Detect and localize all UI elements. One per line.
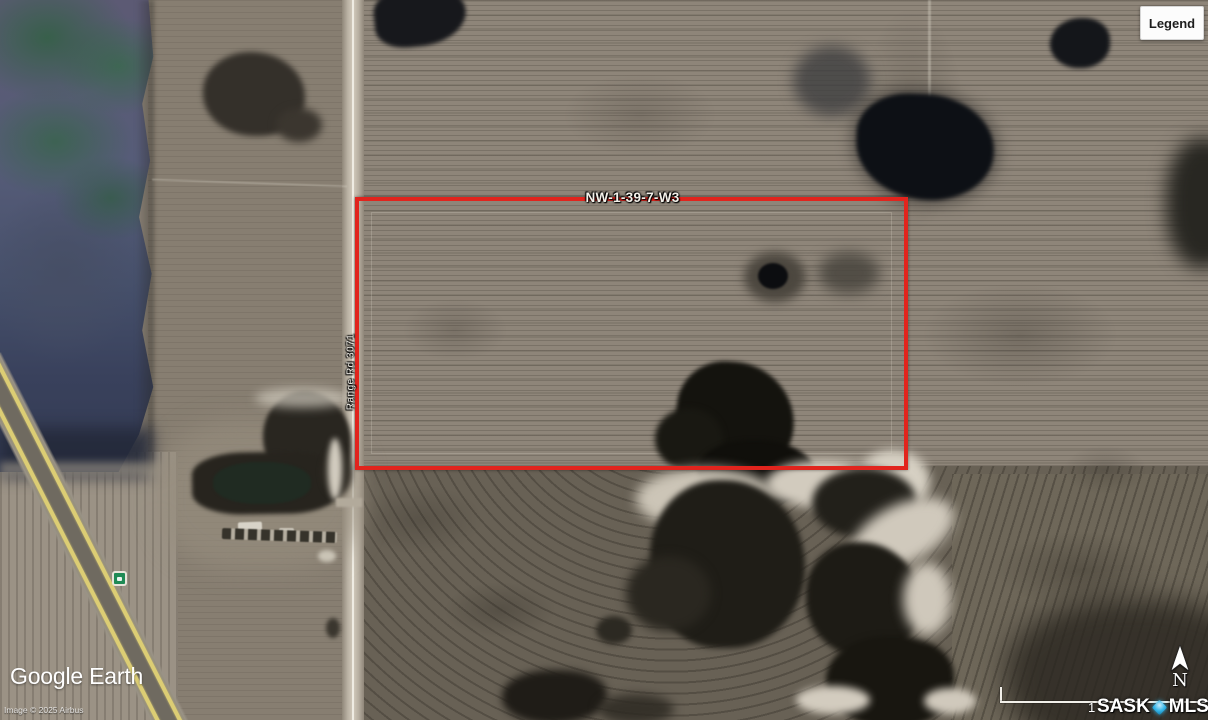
legend-button[interactable]: Legend <box>1140 6 1204 40</box>
scale-bar-label: 1 <box>1088 700 1095 715</box>
north-compass: N <box>1168 645 1192 691</box>
imagery-attribution: Image © 2025 Airbus <box>4 705 84 715</box>
dark-patch <box>1166 138 1208 268</box>
tree-cluster <box>326 618 340 638</box>
north-letter: N <box>1168 671 1192 691</box>
snow-fringe <box>255 388 350 408</box>
sask-mls-logo-left: SASK <box>1097 696 1150 718</box>
diamond-icon <box>1152 699 1168 715</box>
wetland <box>626 556 711 631</box>
sask-mls-logo-right: MLS <box>1169 696 1208 718</box>
sask-mls-logo: SASK MLS ® <box>1097 696 1208 718</box>
wetland <box>502 670 607 720</box>
pond-large <box>854 92 996 203</box>
google-earth-watermark: Google Earth <box>10 663 143 690</box>
parcel-label: NW-1-39-7-W3 <box>560 190 705 205</box>
snow-patch <box>328 438 342 500</box>
driveway <box>336 498 362 507</box>
pond <box>1050 18 1110 68</box>
tree-cluster <box>276 108 322 142</box>
pond <box>371 0 469 51</box>
wetland <box>598 694 674 720</box>
dugout <box>213 462 311 504</box>
snow-patch <box>318 550 336 562</box>
salt-flat <box>903 563 951 635</box>
map-canvas: NW-1-39-7-W3 Range Rd 3071 Legend Google… <box>0 0 1208 720</box>
salt-flat <box>796 686 870 714</box>
legend-button-label: Legend <box>1149 16 1195 31</box>
north-arrow-icon <box>1168 645 1192 671</box>
pond-shadow <box>793 46 871 116</box>
salt-flat <box>924 688 976 714</box>
parcel-boundary <box>355 197 908 470</box>
road-label: Range Rd 3071 <box>346 334 357 411</box>
wetland <box>596 616 632 644</box>
